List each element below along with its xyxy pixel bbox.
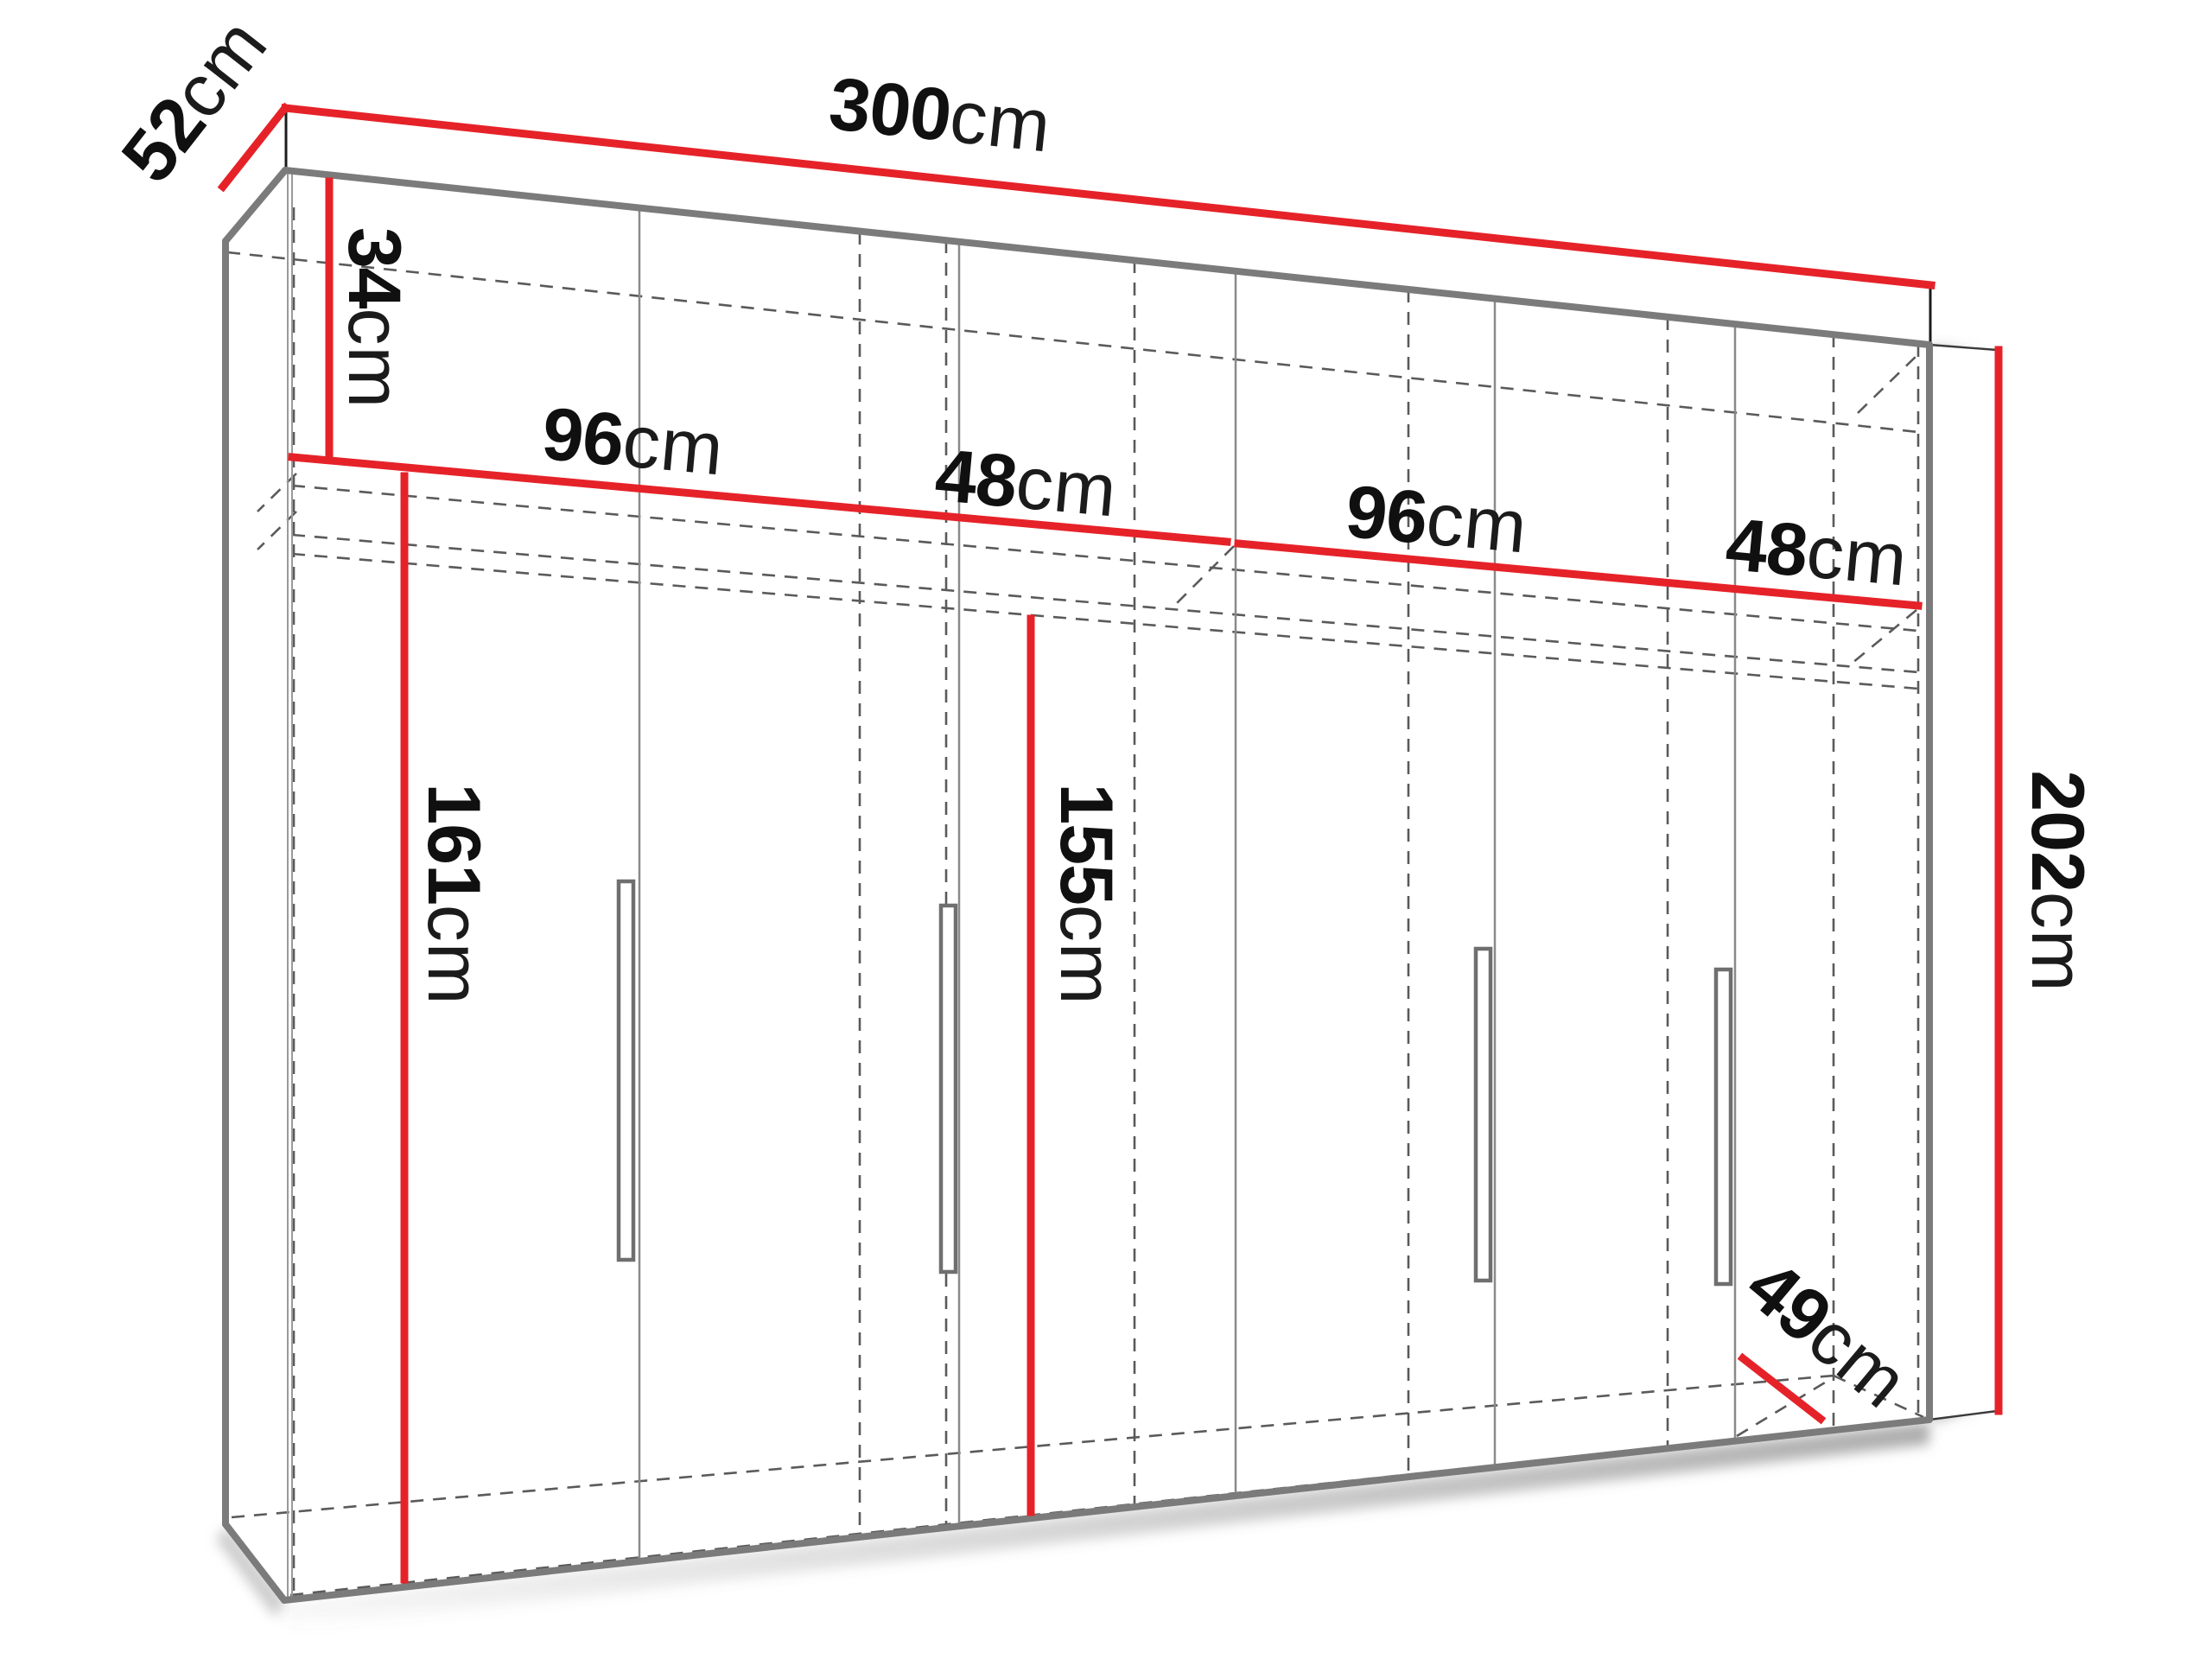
- door-handle: [941, 906, 956, 1272]
- dimension-label-section-3: 96cm: [1343, 470, 1531, 569]
- dimension-label-width: 300cm: [825, 62, 1055, 168]
- door-handle: [619, 881, 633, 1260]
- door-handle: [1716, 969, 1731, 1284]
- right-side-face: [1929, 345, 1997, 1420]
- dimension-label-top-section: 34cm: [333, 227, 416, 409]
- dimension-label-section-2: 48cm: [932, 434, 1121, 533]
- dimension-label-depth-top: 52cm: [106, 3, 283, 198]
- wardrobe-dimension-diagram: 52cm 300cm 34cm 96cm 48cm 96cm 48cm 202c…: [0, 0, 2212, 1659]
- dimension-label-section-4: 48cm: [1723, 503, 1911, 602]
- dimension-label-left-interior: 161cm: [412, 783, 495, 1005]
- dimension-label-height: 202cm: [2016, 770, 2099, 992]
- dimension-line-depth-top: [223, 108, 285, 187]
- dimension-label-section-1: 96cm: [539, 392, 728, 492]
- diagram-canvas: 52cm 300cm 34cm 96cm 48cm 96cm 48cm 202c…: [0, 0, 2212, 1659]
- door-handle: [1476, 949, 1491, 1281]
- dimension-label-center-interior: 155cm: [1045, 783, 1128, 1005]
